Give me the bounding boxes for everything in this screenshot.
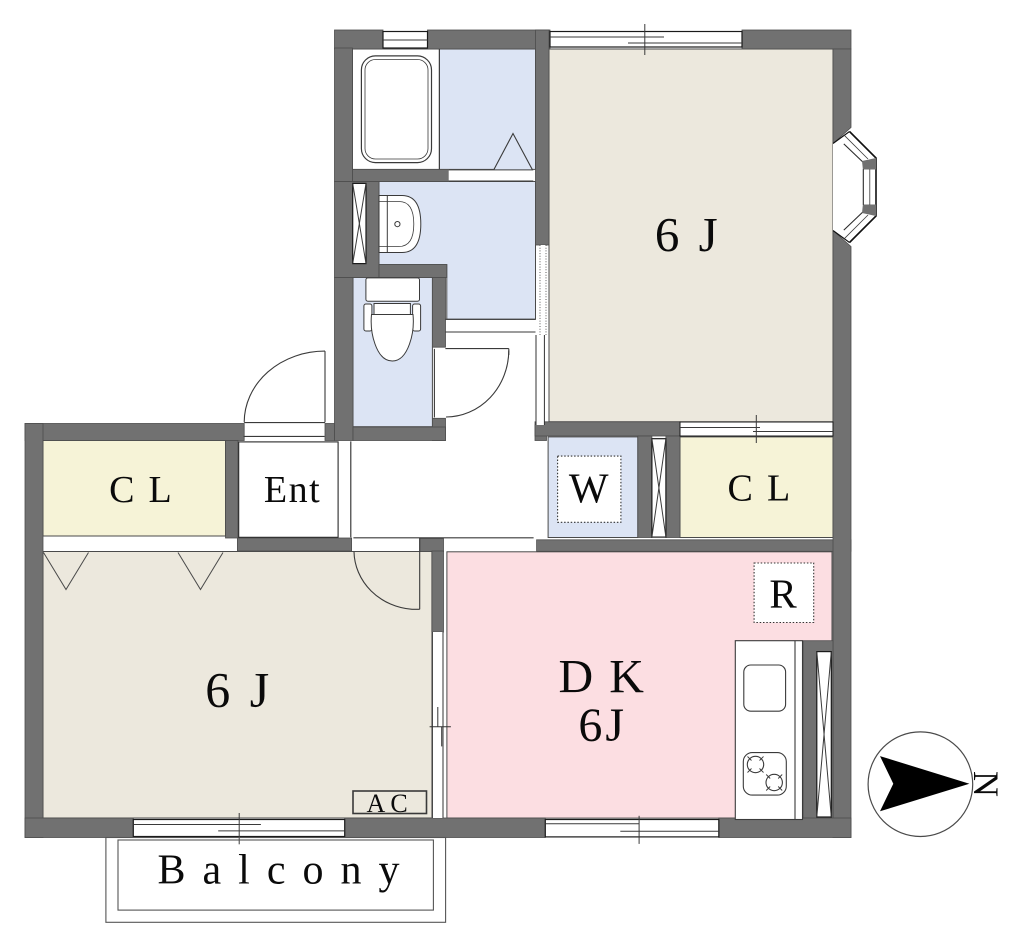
- svg-text:6J: 6J: [578, 699, 627, 752]
- svg-text:6 J: 6 J: [205, 662, 272, 718]
- svg-text:A C: A C: [367, 789, 408, 818]
- svg-text:6 J: 6 J: [655, 207, 721, 262]
- svg-text:D K: D K: [559, 651, 646, 704]
- svg-text:R: R: [769, 571, 797, 617]
- svg-text:C L: C L: [728, 468, 793, 510]
- svg-text:C L: C L: [109, 469, 174, 511]
- svg-text:N: N: [966, 771, 1006, 797]
- svg-text:Balcony: Balcony: [158, 848, 417, 894]
- svg-text:Ent: Ent: [264, 469, 321, 511]
- svg-text:W: W: [569, 467, 609, 513]
